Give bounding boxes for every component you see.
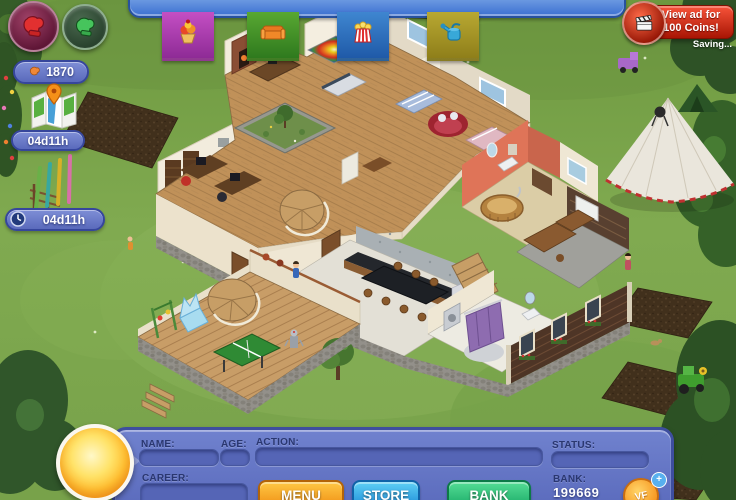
family-info-panel: NAME: AGE: ACTION: STATUS: CAREER: MENU … [112,427,674,500]
action-field [255,447,543,466]
character[interactable] [625,253,631,270]
menu-button[interactable]: MENU [258,480,344,500]
green-hand-button[interactable] [62,4,108,50]
ad-line2: 100 Coins! [663,22,719,35]
status-field [551,451,649,468]
timer-value: 04d11h [43,213,85,227]
gloves-count-badge: 1870 [13,60,89,84]
saving-status: Saving... [640,39,732,50]
round-red-bed [428,111,468,137]
gloves-count: 1870 [46,65,74,79]
shop-tab-treats[interactable] [162,12,214,61]
name-field [139,449,219,466]
trip-time: 04d11h [28,134,69,148]
popcorn-icon [348,17,378,47]
bank-balance: 199669 [553,485,599,500]
couch-icon [258,17,288,47]
age-field [220,449,250,466]
game-screen: 1870 04d11h 04d11h View ad for 100 Coins… [0,0,736,500]
status-label: STATUS: [552,440,595,451]
bank-label: BANK: [553,474,586,485]
vf-coin-text: VF [634,489,649,500]
orange-glove-icon [28,65,42,79]
add-coins-button[interactable]: + [651,472,667,488]
shop-tab-furniture[interactable] [247,12,299,61]
shop-tab-popcorn[interactable] [337,12,389,61]
map-button[interactable] [26,82,82,134]
sundae-icon [173,17,203,47]
watering-can-icon [438,17,468,47]
ad-line1: View ad for [662,9,720,22]
map-icon [26,82,82,134]
selected-member-avatar[interactable] [56,424,134,500]
bank-button[interactable]: BANK [447,480,531,500]
character[interactable] [128,237,134,251]
trip-time-badge: 04d11h [11,130,85,151]
timer-badge: 04d11h [5,208,105,231]
store-button[interactable]: STORE [352,480,420,500]
game-world[interactable] [0,0,736,500]
red-hand-button[interactable] [8,1,59,52]
career-field [140,483,248,500]
clock-icon [9,210,27,228]
character[interactable] [293,261,299,278]
green-hand-icon [72,14,99,41]
shop-tab-garden[interactable] [427,12,479,61]
clapperboard-icon [631,10,657,36]
red-hand-icon [19,12,49,42]
